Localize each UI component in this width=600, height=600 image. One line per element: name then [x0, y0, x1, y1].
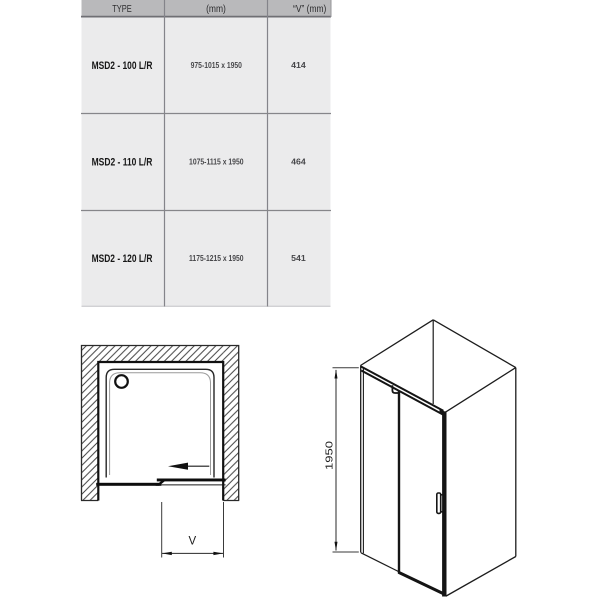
svg-text:414: 414 — [291, 61, 306, 70]
svg-text:541: 541 — [291, 254, 306, 263]
svg-text:464: 464 — [291, 158, 306, 167]
svg-text:1075-1115 x 1950: 1075-1115 x 1950 — [189, 158, 244, 167]
svg-text:(mm): (mm) — [206, 4, 226, 15]
svg-text:MSD2 - 110 L/R: MSD2 - 110 L/R — [92, 156, 153, 168]
svg-text:MSD2 - 100 L/R: MSD2 - 100 L/R — [92, 60, 153, 72]
svg-text:975-1015 x 1950: 975-1015 x 1950 — [191, 61, 243, 70]
svg-text:MSD2 - 120 L/R: MSD2 - 120 L/R — [92, 253, 153, 265]
svg-text:1950: 1950 — [324, 441, 336, 470]
svg-text:V: V — [188, 536, 196, 548]
svg-text:1175-1215 x 1950: 1175-1215 x 1950 — [189, 254, 244, 263]
svg-text:TYPE: TYPE — [112, 4, 132, 15]
svg-text:“V” (mm): “V” (mm) — [293, 4, 326, 15]
